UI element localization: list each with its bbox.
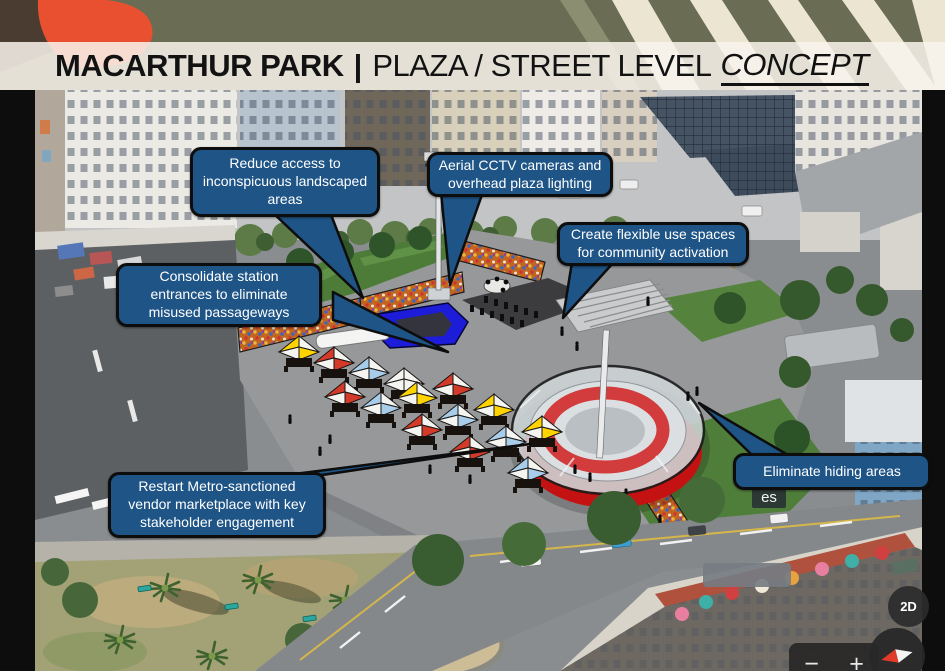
zoom-in-button[interactable]: + [849,652,864,671]
callout-eliminate-hiding: Eliminate hiding areas [733,453,931,490]
callout-reduce-access: Reduce access to inconspicuous landscape… [190,147,380,217]
title-emphasis: CONCEPT [721,47,869,86]
presentation-slide: MACARTHUR PARK | PLAZA / STREET LEVEL CO… [0,0,945,671]
title-section: PLAZA / STREET LEVEL [372,48,711,84]
compass-icon [878,642,916,670]
callout-consolidate-entrances: Consolidate station entrances to elimina… [116,263,322,327]
title-park: MACARTHUR PARK [55,48,344,84]
left-letterbox [0,90,35,671]
zoom-out-button[interactable]: − [804,652,819,671]
callout-flexible-spaces: Create flexible use spaces for community… [557,222,749,266]
mode-2d-button[interactable]: 2D [888,586,929,627]
callout-cctv-lighting: Aerial CCTV cameras and overhead plaza l… [427,152,613,197]
covered-label [703,563,791,587]
zoom-control[interactable]: − + [789,643,879,671]
title-separator: | [354,48,363,84]
right-letterbox [922,90,945,671]
callout-vendor-marketplace: Restart Metro-sanctioned vendor marketpl… [108,472,326,538]
slide-title: MACARTHUR PARK | PLAZA / STREET LEVEL CO… [0,42,945,90]
